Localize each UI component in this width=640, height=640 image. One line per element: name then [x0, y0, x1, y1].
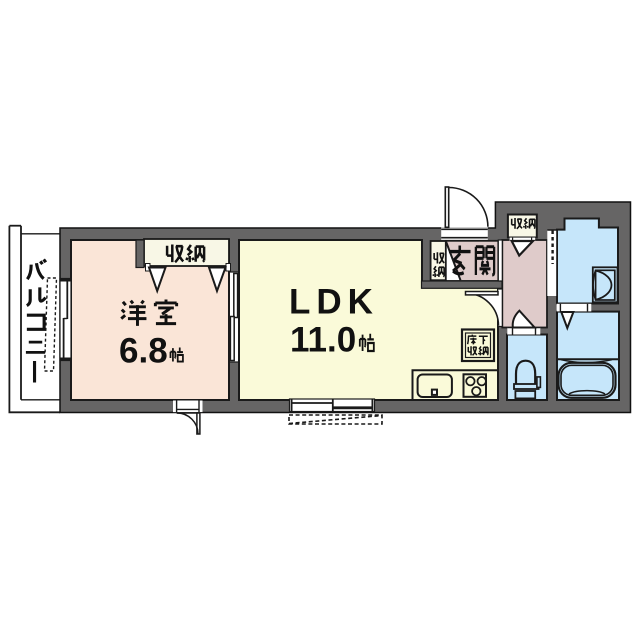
svg-text:11.0: 11.0 [290, 321, 356, 360]
svg-text:6.8: 6.8 [119, 332, 168, 371]
svg-text:LDK: LDK [289, 283, 379, 322]
